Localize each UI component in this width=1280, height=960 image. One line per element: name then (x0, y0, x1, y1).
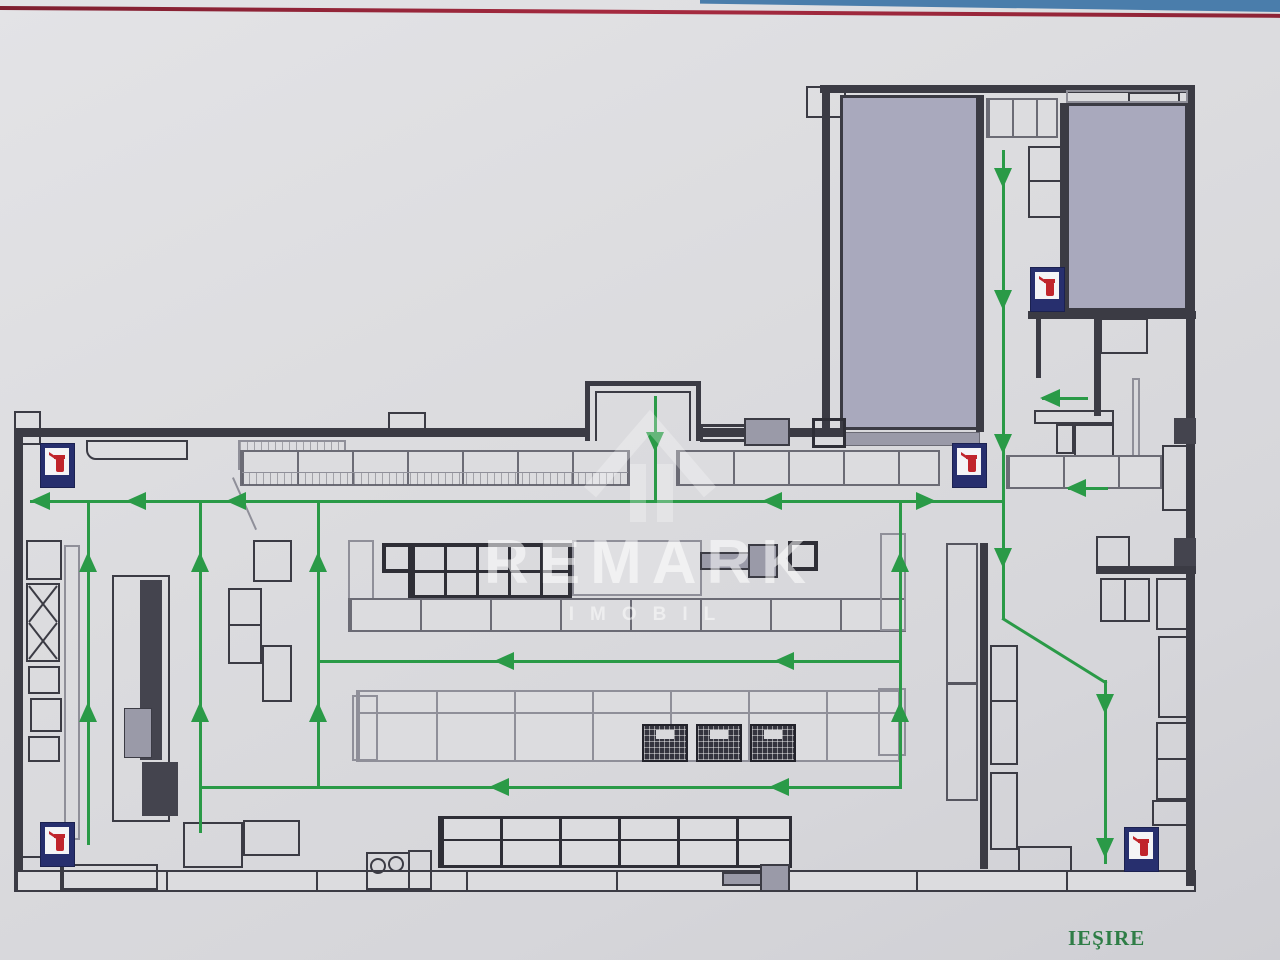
right-strip-shelf (1158, 636, 1190, 718)
extinguisher-glyph (1035, 272, 1059, 299)
exit-gate-block (760, 864, 790, 892)
route-loop-horizontal-1 (318, 660, 902, 663)
extinguisher-glyph (1129, 832, 1153, 859)
left-cabinet-gray-box (124, 708, 152, 758)
right-shelf-2 (990, 772, 1018, 850)
arrow-up-icon (79, 702, 97, 722)
right-lower-room (1156, 722, 1190, 800)
exit-label: IEŞIRE (1068, 926, 1145, 951)
gondola1-base-shelf (348, 598, 906, 632)
arrow-up-icon (891, 702, 909, 722)
right-inner-wall (980, 543, 988, 869)
hall-left-wall (14, 430, 23, 886)
arrow-left-icon (1066, 479, 1086, 497)
hall-bottom-wall (14, 870, 1196, 892)
arrow-left-icon (226, 492, 246, 510)
storage-room-right-top-shelf (1066, 90, 1188, 103)
evacuation-floor-plan-photo: REMARK IMOBIL IEŞIRE (0, 0, 1280, 960)
extinguisher-glyph (45, 448, 69, 475)
gondola2-endcap-left (352, 695, 378, 761)
left-cabinet-dark-box (142, 762, 178, 816)
entrance-vestibule-inner-line (595, 391, 691, 441)
top-shelf-row-right (676, 450, 940, 486)
arrow-down-icon (994, 168, 1012, 188)
white-cooler-1 (253, 540, 292, 582)
cart-corral (366, 852, 410, 890)
white-cooler-2 (228, 588, 262, 664)
left-fixture-box-2 (28, 666, 60, 694)
right-narrow-room (1156, 578, 1192, 630)
gondola2-shelf-midline (358, 712, 898, 714)
left-wall-shelf-strip (64, 545, 80, 840)
right-shelf-cells (1096, 536, 1130, 568)
bottom-left-counter-2 (243, 820, 300, 856)
cart-corral-bar (408, 850, 432, 890)
cart-wheel-2 (388, 856, 404, 872)
hall-top-wall-left (14, 428, 586, 437)
right-shelf-1 (990, 645, 1018, 765)
route-vertical-4 (899, 503, 902, 789)
gondola1-light-panel (572, 540, 702, 596)
right-tall-shelf (946, 543, 978, 801)
right-wall-pillar-1 (1174, 418, 1196, 444)
cart-wheel-1 (370, 858, 386, 874)
bottom-right-counter (1018, 846, 1072, 872)
route-vertical-3 (317, 503, 320, 789)
arrow-right-icon (916, 492, 936, 510)
white-cooler-3 (262, 645, 292, 702)
arrow-left-icon (769, 778, 789, 796)
gondola1-bold-grid (408, 543, 572, 599)
wall-notch-box (388, 412, 426, 430)
arrow-up-icon (309, 552, 327, 572)
right-lower-room-div (1158, 758, 1188, 760)
arrow-left-icon (126, 492, 146, 510)
gondola1-endcap-right (880, 533, 906, 631)
arrow-left-icon (30, 492, 50, 510)
arrow-up-icon (191, 552, 209, 572)
left-stairs-xbox (26, 583, 60, 662)
gondola2-basket-1 (642, 724, 688, 762)
storage-room-right (1066, 103, 1188, 311)
backroom-small-room (1100, 318, 1148, 354)
counter-rounded (86, 440, 188, 460)
fire-extinguisher-icon (40, 822, 75, 867)
arrow-left-icon (494, 652, 514, 670)
arrow-up-icon (309, 702, 327, 722)
entrance-turnstile-block (744, 418, 790, 446)
corridor-side-fixture-divider (1030, 180, 1062, 182)
right-shelf-1-div (992, 700, 1016, 702)
arrow-down-icon (1096, 838, 1114, 858)
arrow-left-icon (489, 778, 509, 796)
right-room-cells-div (1124, 580, 1126, 620)
extinguisher-glyph (45, 827, 69, 854)
corridor-left-wall (976, 95, 984, 432)
arrow-up-icon (891, 552, 909, 572)
arrow-down-icon (994, 290, 1012, 310)
gondola2-shelf (356, 690, 900, 762)
arrow-left-icon (774, 652, 794, 670)
right-room-box (1162, 445, 1194, 511)
gondola1-handle-bar (700, 552, 752, 570)
corridor-top-shelf-cells (986, 98, 1058, 138)
corridor-side-fixture (1028, 146, 1064, 218)
fire-extinguisher-icon (952, 443, 987, 488)
gondola2-basket-2 (696, 724, 742, 762)
white-cooler-2-divider (230, 624, 260, 626)
storage-room-left (840, 95, 980, 430)
top-shelf-row-left-hatchband (242, 472, 628, 485)
left-fixture-box-3 (30, 698, 62, 732)
extinguisher-glyph (957, 448, 981, 475)
backroom-table-leg (1056, 424, 1074, 454)
arrow-down-icon (994, 434, 1012, 454)
arrow-up-icon (191, 702, 209, 722)
fire-extinguisher-icon (1124, 827, 1159, 872)
arrow-up-icon (79, 552, 97, 572)
entrance-vestibule (585, 381, 701, 441)
exit-gate-bar (722, 872, 764, 886)
wing-left-wall (822, 88, 830, 432)
left-fixture-box-1 (26, 540, 62, 580)
backroom-table (1034, 410, 1114, 424)
arrow-down-icon (646, 432, 664, 452)
right-wall-pillar-2 (1174, 538, 1196, 568)
arrow-left-icon (1040, 389, 1060, 407)
gondola1-bold-square-right (788, 541, 818, 571)
bottom-right-box (1152, 800, 1192, 826)
gondola1-handle-head (748, 544, 778, 578)
left-fixture-box-4 (28, 736, 60, 762)
backroom-wall-stub (1036, 318, 1041, 378)
x-brace-icon (28, 585, 58, 660)
checkout-counter-row (438, 816, 792, 868)
fire-extinguisher-icon (1030, 267, 1065, 312)
fire-extinguisher-icon (40, 443, 75, 488)
route-loop-horizontal-2 (200, 786, 902, 789)
arrow-down-icon (1096, 694, 1114, 714)
bottom-left-counter-1 (183, 822, 243, 868)
right-tall-shelf-divider (948, 682, 976, 685)
entrance-side-box (812, 418, 846, 448)
bottom-left-box-2 (62, 864, 158, 890)
gondola2-basket-3 (750, 724, 796, 762)
route-main-horizontal (30, 500, 1004, 503)
arrow-down-icon (994, 548, 1012, 568)
arrow-left-icon (762, 492, 782, 510)
backroom-inner-wall (1094, 318, 1101, 416)
